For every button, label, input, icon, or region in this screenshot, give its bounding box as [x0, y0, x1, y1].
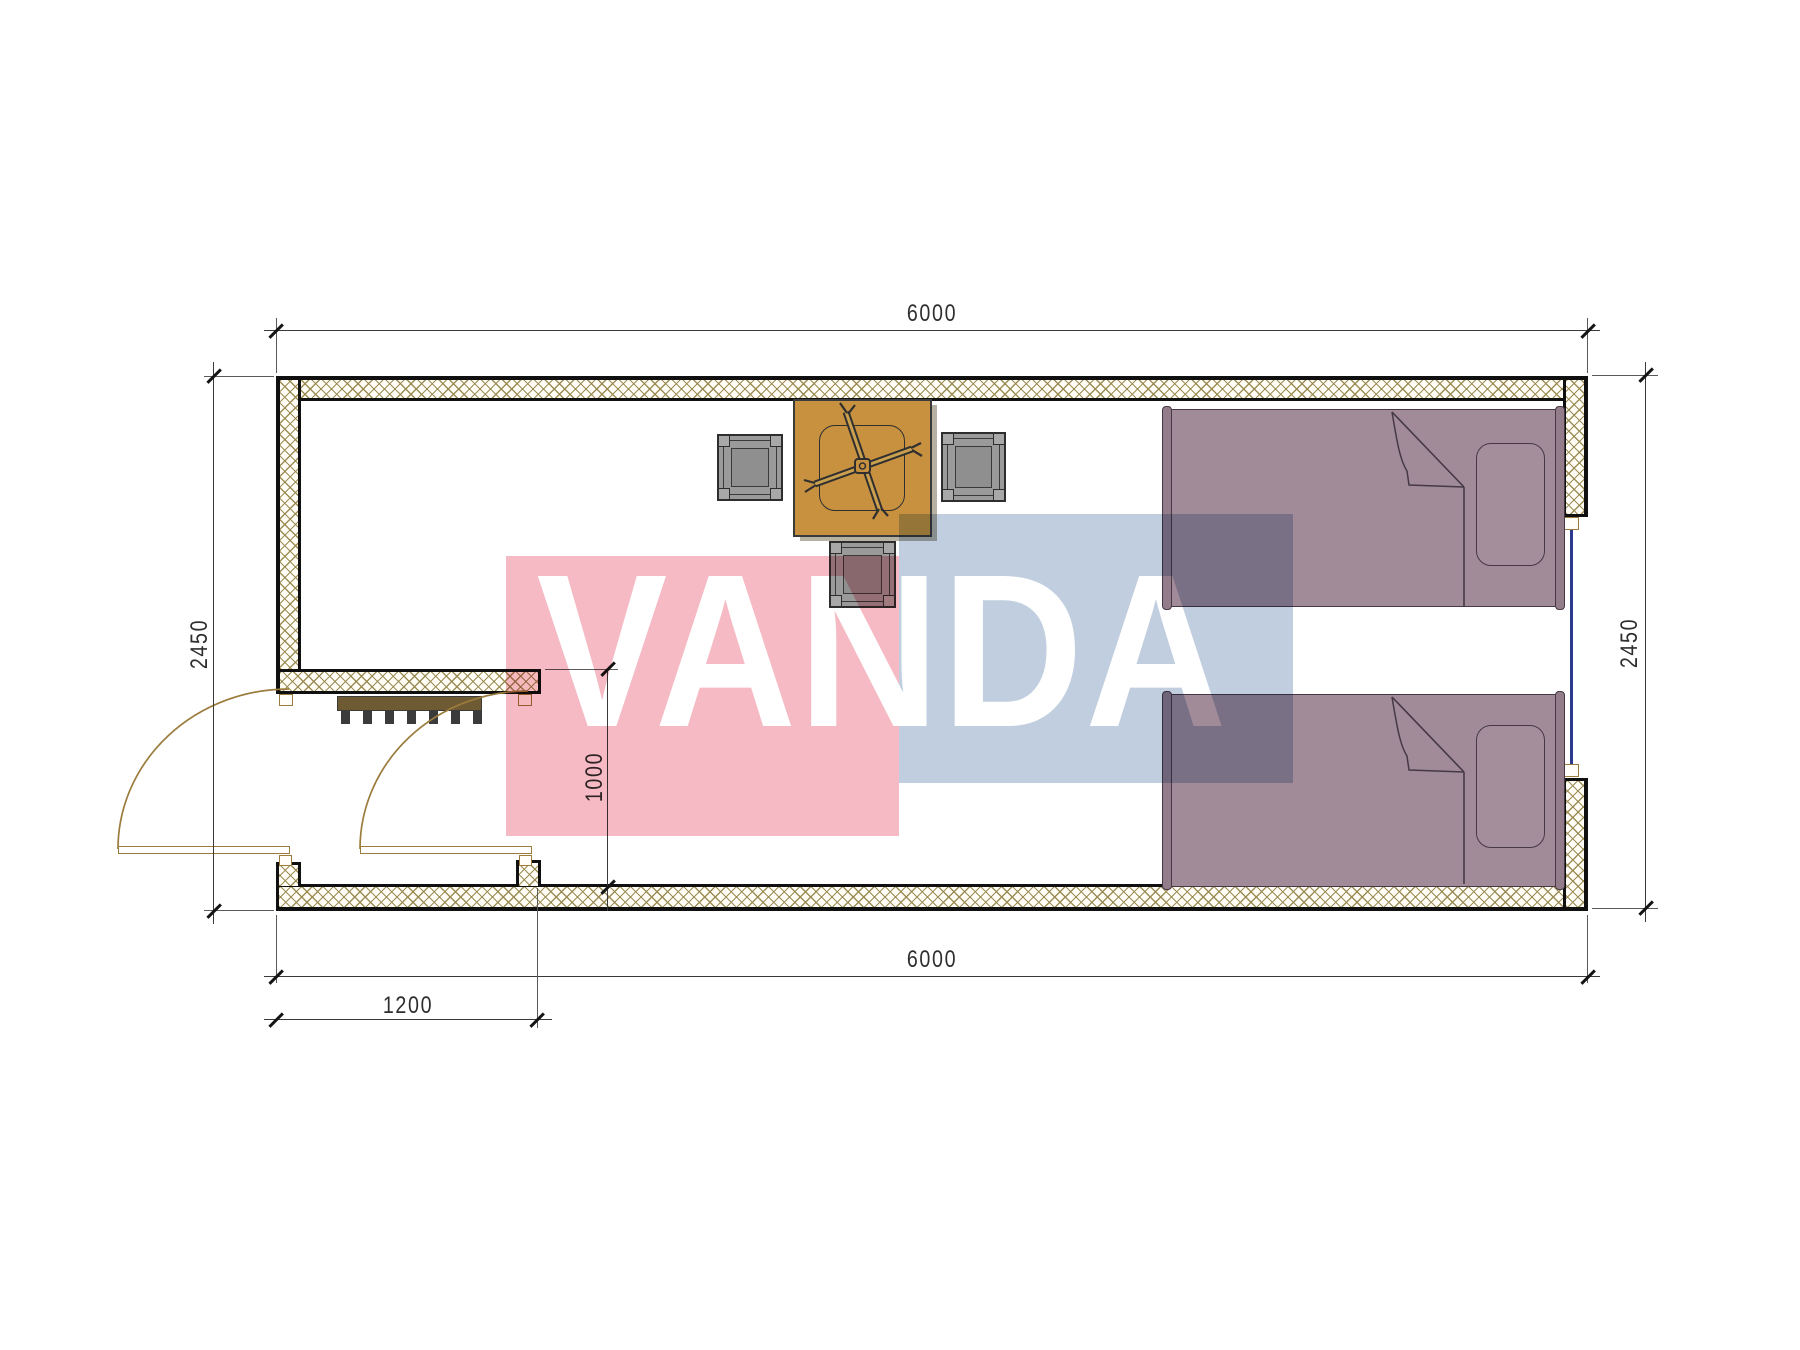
door-swing-arc-middle [360, 691, 528, 849]
bed-bottom-fold-diagonal [1392, 697, 1464, 772]
dim-bottom-label: 6000 [907, 946, 957, 974]
door-swing-arc-left [118, 689, 289, 849]
dim-line-right [1645, 362, 1646, 922]
extension-line [1592, 908, 1658, 909]
extension-line [1587, 318, 1588, 373]
extension-line [1592, 375, 1658, 376]
dim-entry-label: 1200 [383, 992, 433, 1020]
floor-plan-page: 6000 6000 1200 2450 2450 1000 VANDA [0, 0, 1800, 1350]
dim-right-label: 2450 [1616, 618, 1644, 668]
bed-top-fold-diagonal [1392, 412, 1464, 487]
extension-line [537, 888, 538, 1028]
table-cross-hub [855, 459, 870, 473]
dim-porch-label: 1000 [581, 752, 609, 802]
extension-line [276, 318, 277, 373]
table-cross-finial [911, 443, 922, 456]
dim-line-top [264, 330, 1600, 331]
table-cross-finial [840, 403, 855, 414]
linework-layer [0, 0, 1800, 1350]
dim-top-label: 6000 [907, 300, 957, 328]
extension-line [1587, 915, 1588, 983]
dim-left-label: 2450 [186, 619, 214, 669]
table-cross-finial [804, 480, 816, 492]
dim-line-bottom [264, 976, 1600, 977]
